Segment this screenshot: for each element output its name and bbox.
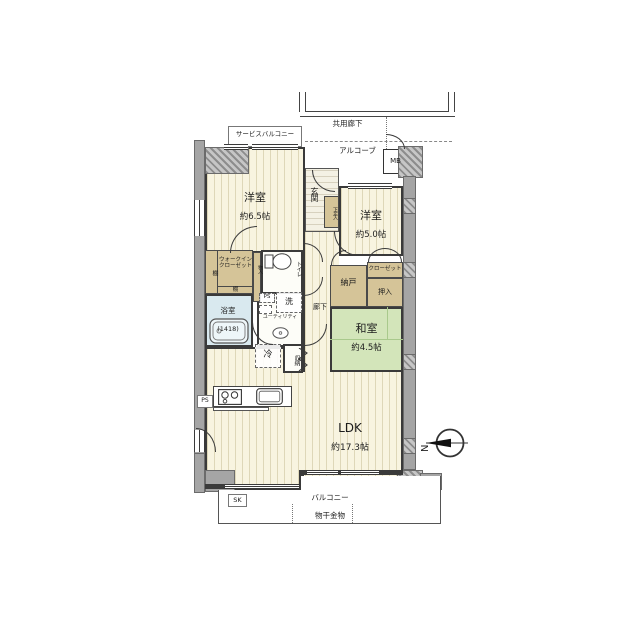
- western50-name: 洋室: [360, 209, 382, 222]
- wic-shelf-bottom-label: 棚: [218, 287, 253, 293]
- common-corridor-label: 共用廊下: [305, 120, 390, 129]
- washbasin-label: 洗: [276, 297, 302, 306]
- ldk-name: LDK: [338, 421, 362, 435]
- bathroom-label: 浴室 (1418): [205, 299, 251, 336]
- laundry-tick-left: [292, 504, 293, 523]
- balcony-window-right: [341, 470, 379, 475]
- western65-label: 洋室 約6.5帖: [205, 187, 305, 224]
- western50-label: 洋室 約5.0帖: [339, 205, 403, 242]
- ldk-label: LDK 約17.3帖: [310, 418, 390, 455]
- slop-sink-label: SK: [228, 497, 247, 504]
- counter-step: [213, 407, 269, 411]
- utility-basin-icon: [272, 327, 289, 339]
- right-wall-hatch-4: [403, 438, 416, 454]
- bathroom-size: (1418): [217, 325, 239, 333]
- ps-utility-label: PS: [259, 294, 275, 300]
- oshiire-label: 押入: [367, 288, 403, 296]
- sink-icon: [256, 388, 283, 405]
- meter-box-label: MB: [383, 157, 408, 165]
- right-wall-hatch-2: [403, 262, 416, 278]
- wic-shelf-left-label: 棚: [206, 263, 217, 281]
- balcony-window-mid: [307, 470, 338, 475]
- wic-label: ウォークインクローゼット: [218, 257, 253, 270]
- ldk-size: 約17.3帖: [331, 443, 369, 453]
- storage-room-label: 納戸: [330, 278, 367, 287]
- right-outer-wall: [403, 176, 416, 470]
- corner-hatch-top-left: [205, 147, 249, 174]
- bath-door-arc: [252, 322, 273, 345]
- alcove-label: アルコーブ: [315, 147, 400, 156]
- closet-label: クローゼット: [367, 266, 403, 272]
- ps-kitchen-label: PS: [197, 398, 213, 405]
- western65-window-1: [224, 144, 248, 150]
- balcony-label: バルコニー: [295, 494, 365, 503]
- toilet-icon: [264, 252, 292, 271]
- toilet-label: トイレ: [290, 252, 301, 284]
- utility-label: ユーティリティ: [257, 315, 303, 321]
- bottom-left-wall-a: [194, 453, 205, 493]
- japanese-size: 約4.5帖: [351, 343, 382, 353]
- service-balcony-label: サービスバルコニー: [228, 131, 302, 138]
- left-outer-wall: [194, 140, 205, 470]
- left-wall-window: [194, 200, 205, 236]
- small-storage-label: 物入: [252, 257, 262, 281]
- western50-window: [348, 183, 392, 189]
- storage-label: 収納: [287, 347, 299, 372]
- western50-size: 約5.0帖: [356, 230, 387, 240]
- western65-size: 約6.5帖: [240, 212, 271, 222]
- western65-window-2: [252, 144, 298, 150]
- japanese-label: 和室 約4.5帖: [330, 318, 403, 355]
- laundry-hardware-label: 物干金物: [295, 512, 365, 521]
- shoe-cabinet-label: 下足入: [325, 199, 337, 227]
- floor-plan: N 共用廊下 アルコーブ サービスバルコニー MB 洋室 約6.5帖 洋室 約5…: [0, 0, 640, 640]
- western65-name: 洋室: [244, 191, 266, 204]
- japanese-name: 和室: [356, 322, 378, 335]
- building-stub-left: [299, 92, 306, 112]
- bathroom-name: 浴室: [221, 306, 236, 315]
- right-wall-hatch-1: [403, 198, 416, 214]
- balcony-window-left: [225, 484, 299, 489]
- building-top-wall: [300, 111, 455, 117]
- hallway-label: 廊下: [303, 303, 337, 311]
- entrance-label: 玄関: [307, 177, 319, 211]
- stove-icon: [218, 389, 242, 405]
- duct-box: [259, 305, 272, 314]
- compass-north-label: N: [420, 445, 431, 452]
- compass: N: [420, 420, 472, 466]
- right-wall-hatch-3: [403, 354, 416, 370]
- refrigerator-label: 冷: [255, 350, 281, 360]
- building-stub-right: [448, 92, 455, 112]
